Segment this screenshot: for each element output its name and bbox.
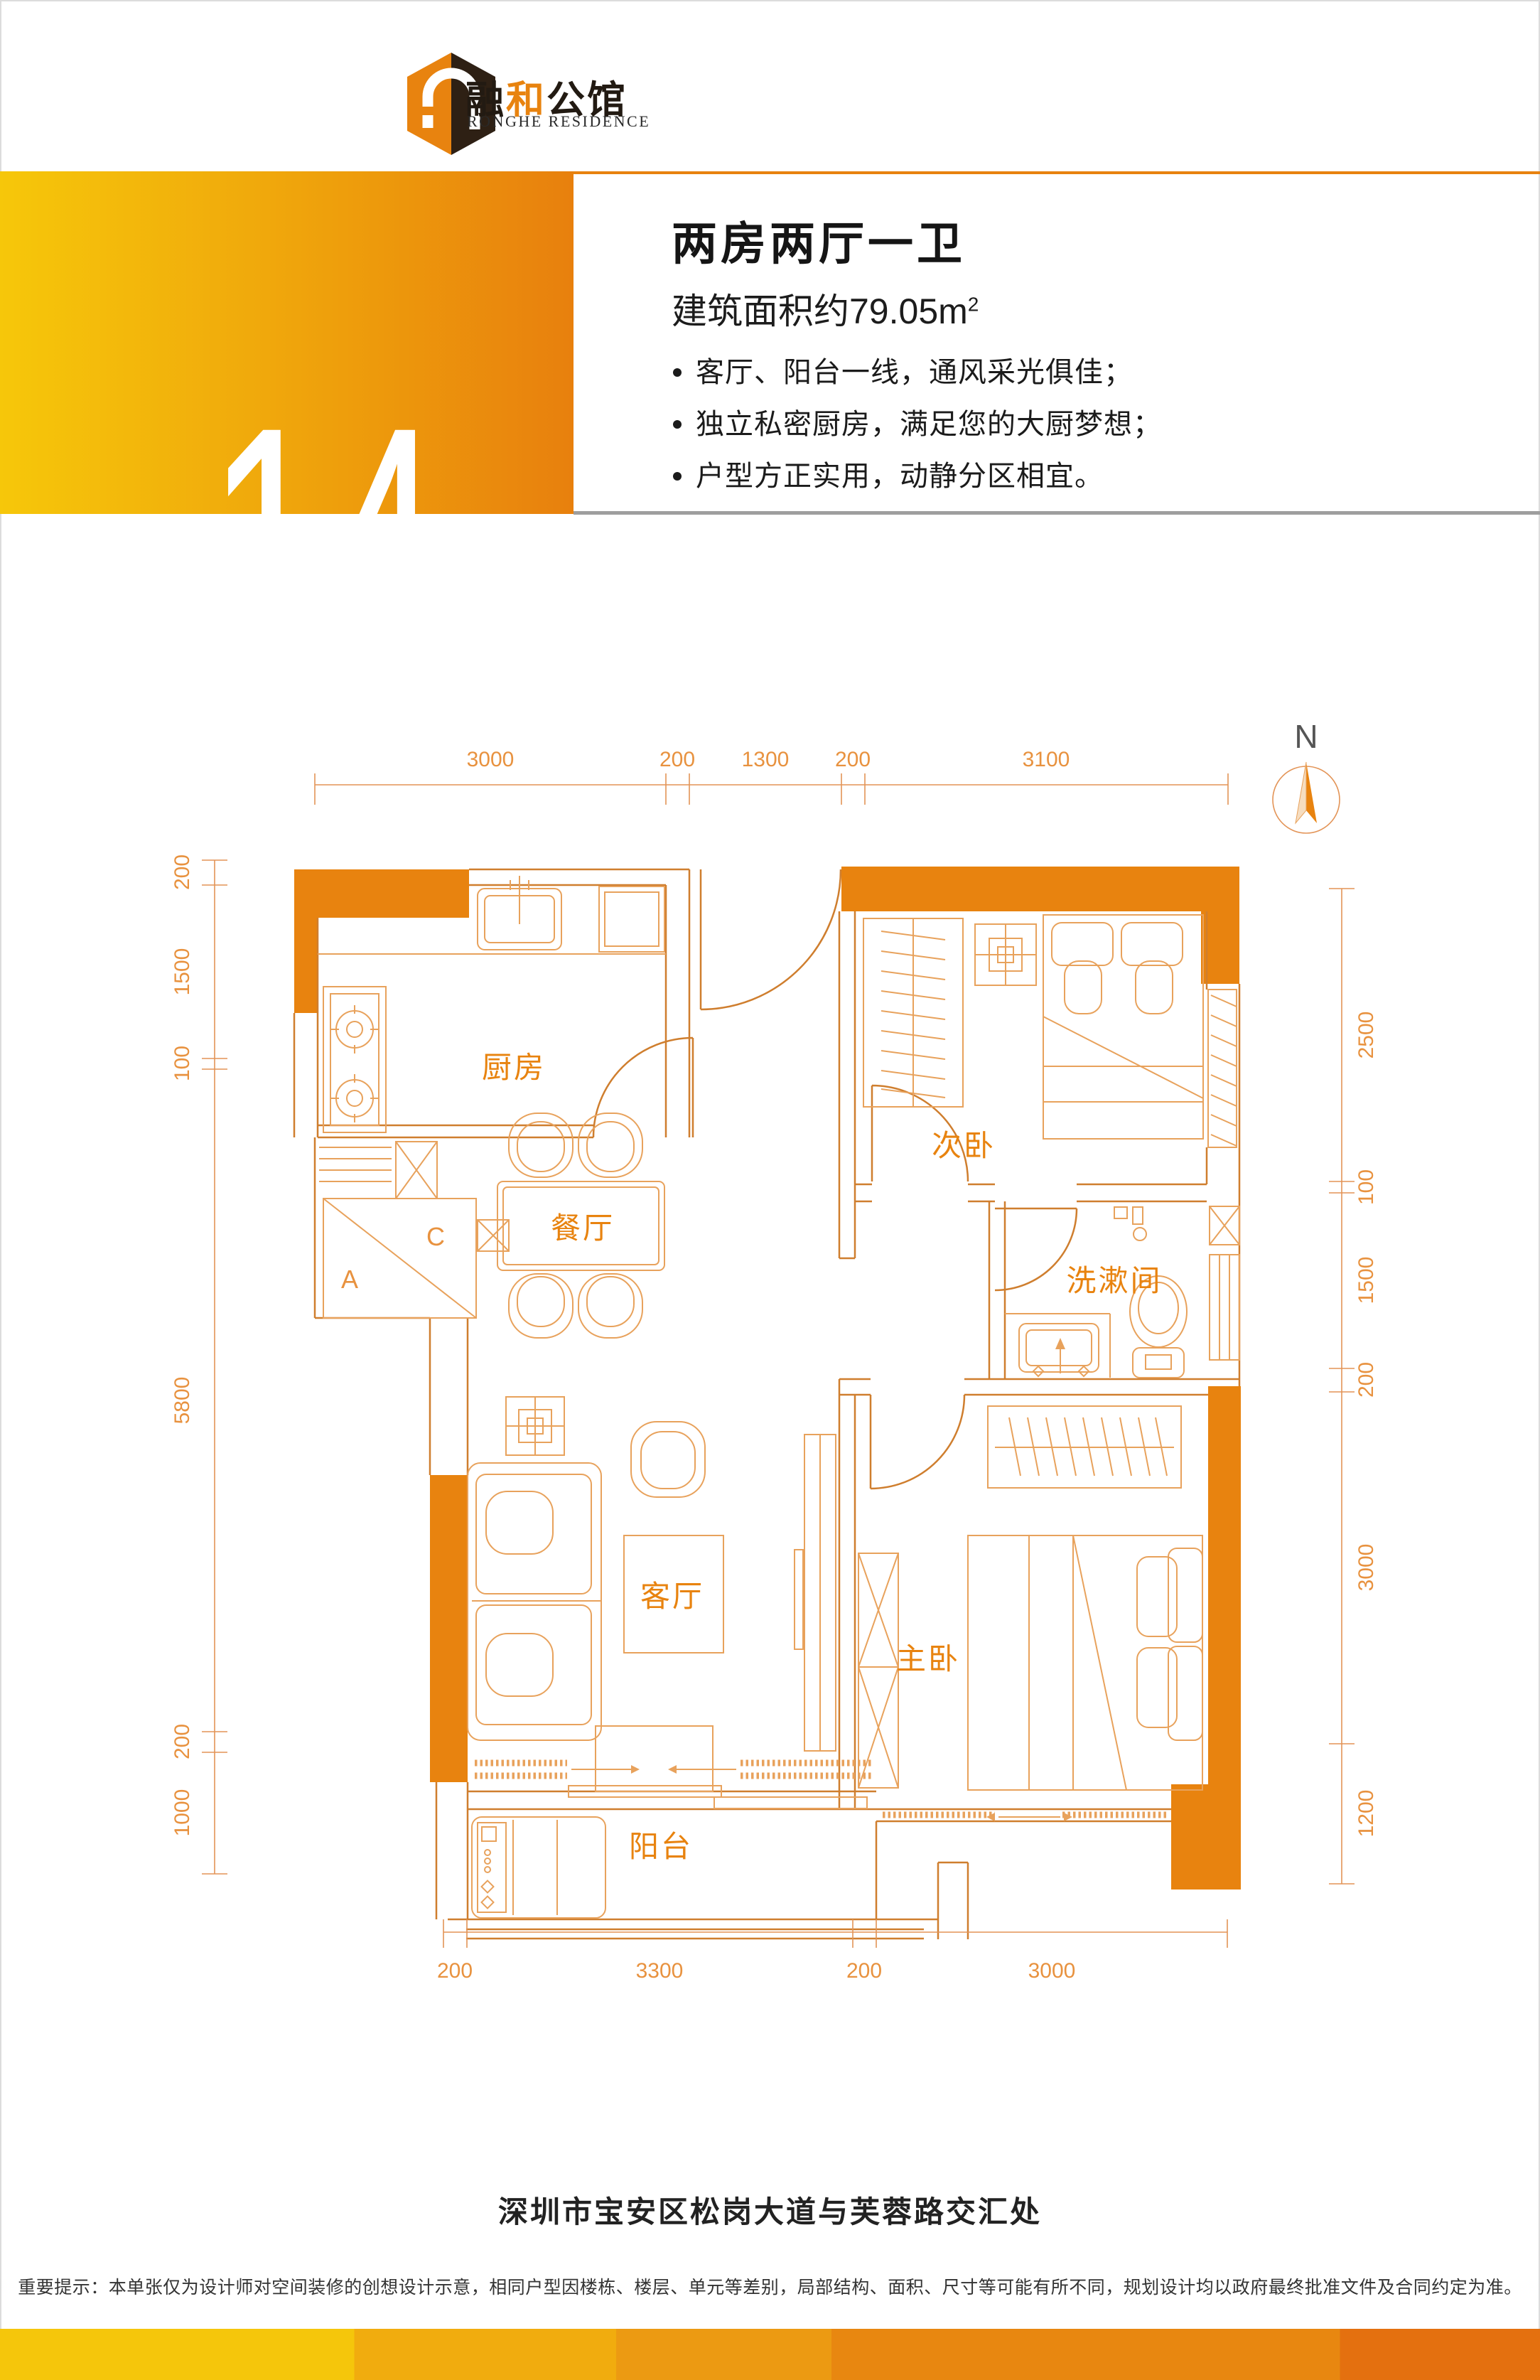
svg-text:3000: 3000	[467, 748, 515, 771]
svg-text:2500: 2500	[1355, 1012, 1378, 1059]
svg-text:1500: 1500	[171, 948, 194, 996]
svg-text:200: 200	[835, 748, 871, 771]
bottom-gradient-bar	[0, 2329, 1540, 2380]
svg-text:200: 200	[437, 1959, 473, 1983]
svg-text:3300: 3300	[636, 1959, 684, 1983]
svg-text:5800: 5800	[171, 1377, 194, 1425]
svg-text:N: N	[1294, 718, 1318, 755]
shaft-label-a: A	[341, 1265, 358, 1294]
label-balcony: 阳台	[629, 1830, 693, 1863]
compass-icon: N	[1273, 718, 1340, 833]
legal-disclaimer: 重要提示：本单张仅为设计师对空间装修的创想设计示意，相同户型因楼栋、楼层、单元等…	[0, 2273, 1540, 2299]
structural-walls	[294, 867, 1241, 1889]
flyer-page: 融和公馆 RONGHE RESIDENCE M 14 两房两厅一卫 建筑面积约7…	[0, 0, 1540, 2380]
svg-text:1200: 1200	[1355, 1790, 1378, 1838]
svg-text:1000: 1000	[171, 1789, 194, 1837]
balcony-fittings	[472, 1817, 605, 1918]
duct-shaft: A C	[319, 1142, 509, 1318]
svg-text:3000: 3000	[1028, 1959, 1076, 1983]
svg-text:100: 100	[171, 1046, 194, 1081]
svg-text:1500: 1500	[1355, 1257, 1378, 1304]
svg-text:1300: 1300	[742, 748, 790, 771]
project-address: 深圳市宝安区松岗大道与芙蓉路交汇处	[0, 2188, 1540, 2231]
master-bedroom	[858, 1406, 1202, 1821]
label-master-bedroom: 主卧	[896, 1642, 960, 1676]
shaft-label-c: C	[426, 1222, 445, 1251]
svg-text:3000: 3000	[1355, 1544, 1378, 1592]
dining-furniture	[497, 1113, 705, 1497]
label-dining: 餐厅	[551, 1211, 615, 1245]
svg-text:200: 200	[171, 1724, 194, 1759]
svg-text:200: 200	[846, 1959, 882, 1983]
svg-text:200: 200	[1355, 1362, 1378, 1398]
label-kitchen: 厨房	[482, 1051, 546, 1084]
svg-text:100: 100	[1355, 1169, 1378, 1205]
label-living: 客厅	[640, 1580, 704, 1613]
floor-plan: A C	[0, 0, 1540, 2380]
room-labels: 厨房 次卧 餐厅 洗漱间 客厅 主卧 阳台	[482, 1051, 1163, 1863]
label-washroom: 洗漱间	[1066, 1264, 1162, 1297]
label-second-bedroom: 次卧	[932, 1129, 996, 1162]
svg-text:200: 200	[171, 854, 194, 890]
living-furniture	[468, 1435, 873, 1808]
svg-text:200: 200	[659, 748, 695, 771]
second-bedroom	[863, 915, 1237, 1147]
svg-text:3100: 3100	[1023, 748, 1070, 771]
